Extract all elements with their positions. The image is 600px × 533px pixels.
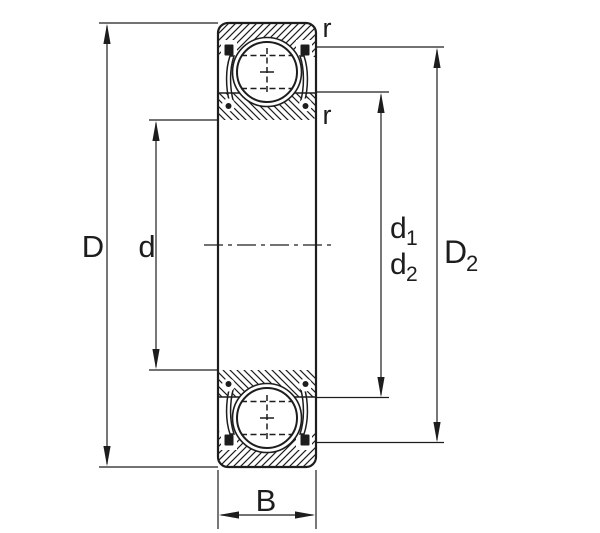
label-d1: d 1 <box>390 212 418 250</box>
shield-anchor-icon <box>225 45 234 56</box>
label-outer-diameter: D <box>82 229 104 264</box>
shield-anchor-icon <box>301 45 310 56</box>
arrow-up-icon <box>103 24 110 44</box>
bottom-section <box>218 370 316 467</box>
shield-anchor-icon <box>301 435 310 446</box>
top-section <box>218 23 316 120</box>
svg-text:2: 2 <box>406 263 418 286</box>
shield-lip-icon <box>226 381 232 387</box>
bearing-dimension-diagram: D d B r r d 1 d 2 D 2 <box>0 0 600 533</box>
label-radius-r-inner: r <box>323 100 332 130</box>
svg-text:2: 2 <box>466 251 478 276</box>
bearing-drawing: D d B r r d 1 d 2 D 2 <box>0 0 600 533</box>
shield-lip-icon <box>303 381 309 387</box>
arrow-left-icon <box>219 511 239 518</box>
shield-lip-icon <box>226 103 232 109</box>
arrow-up-icon <box>377 93 384 113</box>
svg-text:d: d <box>390 212 407 245</box>
shield-lip-icon <box>303 103 309 109</box>
arrow-down-icon <box>433 422 440 442</box>
label-d2: d 2 <box>390 248 418 286</box>
arrow-up-icon <box>433 48 440 68</box>
arrow-down-icon <box>377 377 384 397</box>
label-D2: D 2 <box>444 234 478 276</box>
label-radius-r-outer: r <box>323 13 332 43</box>
label-width-B: B <box>256 483 277 518</box>
arrow-right-icon <box>295 511 315 518</box>
svg-text:D: D <box>444 234 467 270</box>
arrow-up-icon <box>152 121 159 141</box>
arrow-down-icon <box>152 349 159 369</box>
svg-text:d: d <box>390 248 407 281</box>
dimension-D <box>99 23 218 467</box>
svg-text:1: 1 <box>406 227 418 250</box>
shield-anchor-icon <box>225 435 234 446</box>
arrow-down-icon <box>103 446 110 466</box>
label-bore-diameter: d <box>138 229 155 264</box>
